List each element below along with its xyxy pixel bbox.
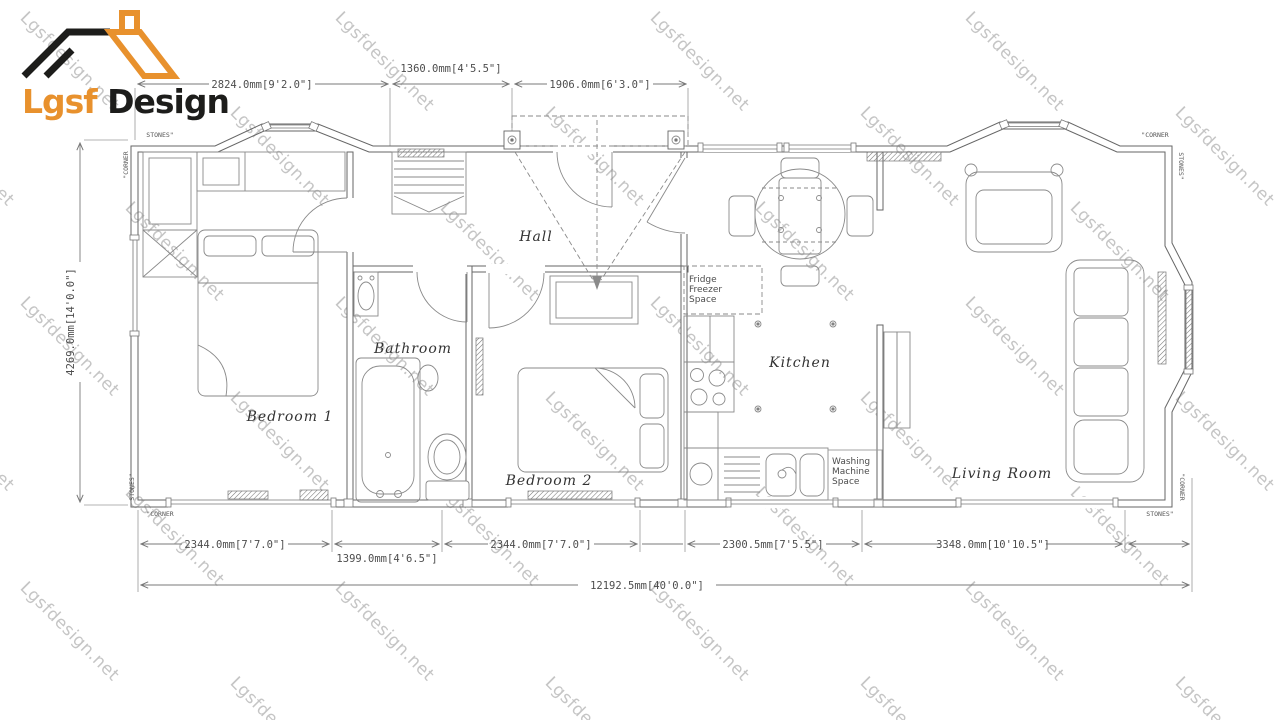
- dim-top-2: 1360.0mm[4'5.5"]: [400, 63, 501, 75]
- corner-note-tl-v: "CORNER: [122, 151, 130, 178]
- bathroom-fixtures: [354, 272, 469, 502]
- radiators: [228, 149, 1166, 500]
- dimension-lines: [80, 84, 1189, 585]
- brand-logo: Lgsf Design: [10, 6, 240, 126]
- roof-logo-icon: [10, 6, 210, 82]
- fridge-space-label-3: Space: [689, 295, 717, 305]
- bedroom2-furniture: [518, 276, 668, 472]
- corner-note-tl-h: STONES": [146, 131, 173, 139]
- dim-top-3: 1906.0mm[6'3.0"]: [549, 79, 650, 91]
- living-room-furniture: [884, 164, 1144, 482]
- dim-bottom-2: 1399.0mm[4'6.5"]: [336, 553, 437, 565]
- washing-space-label-2: Machine: [832, 467, 870, 477]
- corner-note-bl-v: STONES": [128, 473, 136, 500]
- corner-note-tr-v: STONES": [1177, 152, 1185, 179]
- dim-bottom-1: 2344.0mm[7'7.0"]: [184, 539, 285, 551]
- room-label-kitchen: Kitchen: [768, 355, 831, 371]
- door-openings: [345, 143, 689, 274]
- corner-note-bl-h: "CORNER: [146, 510, 173, 518]
- porch-canopy: [504, 116, 688, 290]
- dim-left: 4269.0mm[14'0.0"]: [65, 268, 77, 375]
- washing-space-label-3: Space: [832, 477, 860, 487]
- washing-space-label-1: Washing: [832, 457, 870, 467]
- room-label-hall: Hall: [518, 229, 553, 245]
- room-label-living: Living Room: [951, 466, 1052, 482]
- dining-table: [729, 158, 873, 286]
- dim-bottom-3: 2344.0mm[7'7.0"]: [490, 539, 591, 551]
- room-label-bedroom1: Bedroom 1: [246, 409, 334, 425]
- dim-bottom-5: 3348.0mm[10'10.5"]: [936, 539, 1050, 551]
- brand-word-2: Design: [97, 82, 229, 121]
- dim-bottom-4: 2300.5mm[7'5.5"]: [722, 539, 823, 551]
- windows: [130, 120, 1193, 508]
- corner-note-tr-h: "CORNER: [1141, 131, 1168, 139]
- floorplan-page: Lgsfdesign.netLgsfdesign.netLgsfdesign.n…: [0, 0, 1280, 720]
- corner-note-br-h: STONES": [1146, 510, 1173, 518]
- fridge-space-label-1: Fridge: [689, 275, 717, 285]
- corner-note-br-v: "CORNER: [1178, 473, 1186, 500]
- room-label-bathroom: Bathroom: [373, 341, 452, 357]
- brand-name: Lgsf Design: [22, 82, 229, 121]
- room-label-bedroom2: Bedroom 2: [505, 473, 593, 489]
- exterior-walls: [131, 122, 1192, 507]
- fridge-space-label-2: Freezer: [689, 285, 722, 295]
- dim-overall: 12192.5mm[40'0.0"]: [590, 580, 704, 592]
- dimension-extension-lines: [84, 88, 1192, 592]
- brand-word-1: Lgsf: [22, 82, 97, 121]
